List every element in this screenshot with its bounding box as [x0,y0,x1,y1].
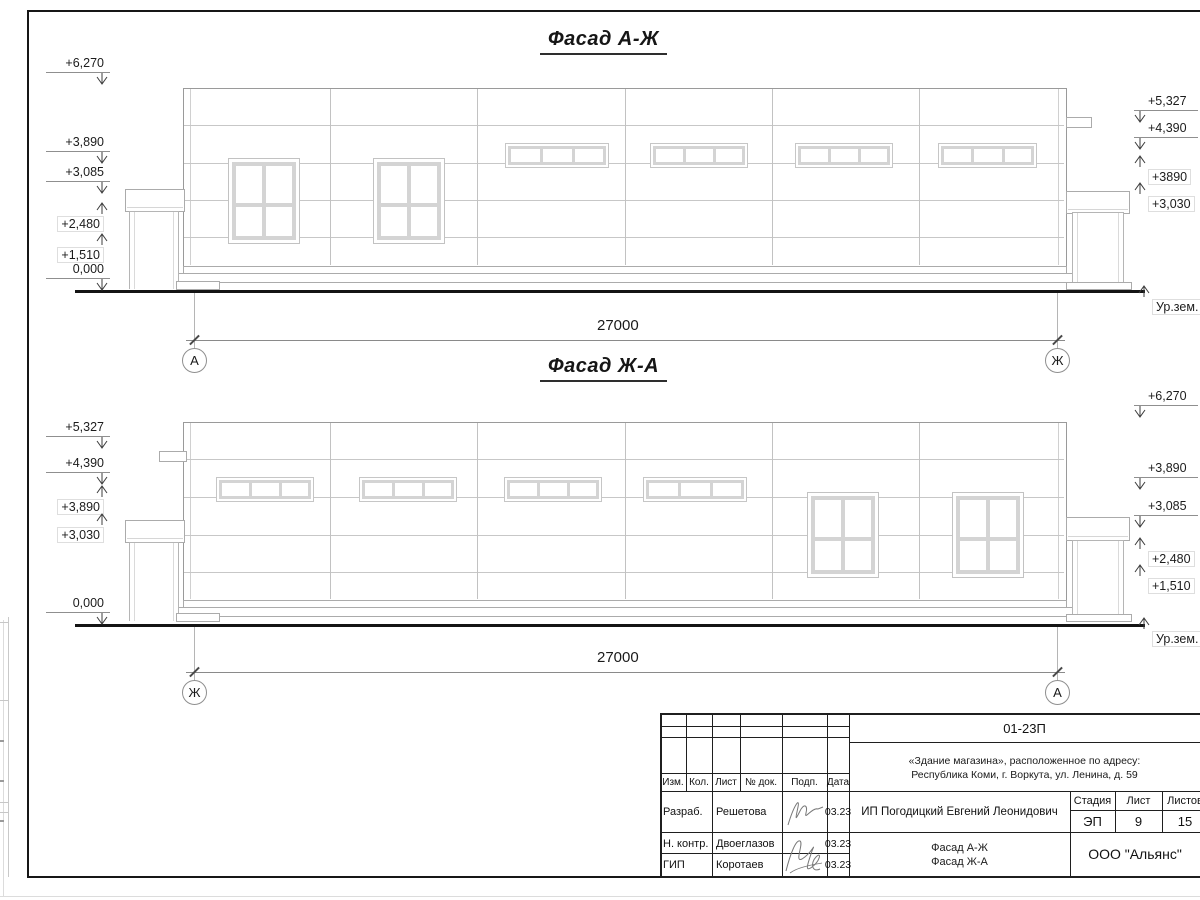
window-frame [941,146,1034,165]
sheet-number: 9 [1115,811,1162,831]
window-divider [537,482,540,497]
ground-line [75,290,1145,293]
elevation-value: +6,270 [65,56,104,70]
signer-role: Н. контр. [663,835,712,853]
window-divider [710,482,713,497]
window-square [373,158,445,244]
sheets-total: 15 [1162,811,1200,831]
signer-role: Разраб. [663,802,712,822]
elevation-arrow-up-icon [1134,181,1146,194]
elevation-mark: +1,510 [42,247,104,262]
elevation-value: +3,890 [65,135,104,149]
window-muntin [236,203,292,207]
porch-edge [134,543,135,621]
sheets-label: Листов [1162,792,1200,810]
paper-edge-left [3,620,4,896]
panel-line [184,535,1064,536]
window-divider [1002,148,1005,163]
panel-line [184,572,1064,573]
panel-joint [477,89,478,265]
porch-edge [1118,541,1119,621]
window-muntin [986,500,990,570]
window-frame [798,146,890,165]
elevation-value: +6,270 [1148,389,1187,403]
window-divider [540,148,543,163]
col-header-podp: Подп. [782,774,827,791]
porch-step [176,281,220,290]
elevation-arrow-up-icon [1138,284,1150,297]
elevation-mark: +2,480 [1148,551,1200,566]
window-divider [422,482,425,497]
elevation-mark: +3,030 [42,527,104,542]
object-description: «Здание магазина», расположенное по адре… [852,746,1197,789]
window-divider [567,482,570,497]
facade-bottom-title: Фасад Ж-А [540,355,667,382]
porch-wall-right [1072,212,1124,289]
col-header-doc: № док. [740,774,782,791]
window-frame [219,480,311,499]
panel-line [184,497,1064,498]
stage-label: Стадия [1070,792,1115,810]
elevation-mark: +3,890 [1148,461,1200,476]
porch-wall-left [129,211,179,289]
elevation-value: +2,480 [57,216,104,232]
stamp-line [660,726,849,727]
signature [784,793,826,831]
porch-step [1066,614,1132,622]
elevation-mark: 0,000 [42,596,104,611]
elevation-value: +5,327 [1148,94,1187,108]
elevation-arrow-down-icon [96,437,108,450]
ground-level-label: Ур.зем. [1152,299,1200,315]
dimension-line [186,340,1065,341]
parapet-ledge [1066,117,1092,128]
col-header-izm: Изм. [660,774,686,791]
window-strip [359,477,457,502]
window-strip [938,143,1037,168]
window-strip [504,477,602,502]
stamp-line [712,713,713,877]
elevation-value: +3,085 [1148,499,1187,513]
signer-name: Коротаев [716,856,780,874]
porch-edge [1077,213,1078,289]
porch-edge [1118,213,1119,289]
window-divider [971,148,974,163]
porch-edge [173,212,174,289]
stamp-drawing-title: Фасад А-Ж Фасад Ж-А [852,833,1067,876]
panel-joint [772,89,773,265]
panel-joint [919,89,920,265]
window-square [807,492,879,578]
window-frame [507,480,599,499]
window-strip [795,143,893,168]
sheet-frame-top [27,10,1200,12]
window-muntin [960,537,1016,541]
elevation-arrow-down-icon [1134,111,1146,124]
canopy-edge [1068,536,1128,537]
canopy-edge [1068,209,1128,210]
elevation-arrow-up-icon [96,232,108,245]
elevation-arrow-up-icon [1134,536,1146,549]
doc-number: 01-23П [849,716,1200,740]
elevation-mark: +3,890 [42,135,104,150]
panel-joint [330,89,331,265]
window-muntin [407,166,411,236]
porch-edge [1077,541,1078,621]
elevation-value: +3,085 [65,165,104,179]
elevation-value: +3,890 [1148,461,1187,475]
window-frame [362,480,454,499]
margin-table-line [0,622,8,623]
elevation-mark: +1,510 [1148,578,1200,593]
col-header-data: Дата [827,774,849,791]
canopy-edge [127,538,183,539]
panel-joint [625,89,626,265]
porch-step [1066,282,1132,290]
sheet-label: Лист [1115,792,1162,810]
porch-edge [134,212,135,289]
window-muntin [815,537,871,541]
object-line2: Республика Коми, г. Воркута, ул. Ленина,… [911,768,1138,782]
stamp-line [660,737,849,738]
dimension-line [186,672,1065,673]
panel-joint [330,423,331,599]
elevation-value: +2,480 [1148,551,1195,567]
elevation-arrow-down-icon [96,613,108,626]
elevation-arrow-up-icon [96,201,108,214]
margin-table-line [8,617,9,877]
elevation-arrow-up-icon [96,484,108,497]
paper-edge-bottom [0,896,1200,897]
elevation-arrow-down-icon [1134,478,1146,491]
window-muntin [841,500,845,570]
elevation-arrow-down-icon [96,73,108,86]
ground-level-mark: Ур.зем. [1152,631,1200,646]
elevation-arrow-down-icon [1134,406,1146,419]
elevation-value: +1,510 [57,247,104,263]
object-line1: «Здание магазина», расположенное по адре… [909,754,1141,768]
elevation-mark: +5,327 [42,420,104,435]
elevation-arrow-up-icon [1134,154,1146,167]
elevation-arrow-up-icon [1134,563,1146,576]
elevation-value: +5,327 [65,420,104,434]
dimension-label: 27000 [597,649,639,666]
porch-wall-left [129,542,179,621]
margin-text-stub [0,780,4,782]
elevation-value: +4,390 [1148,121,1187,135]
stamp-border [660,876,1200,878]
plinth-base [177,273,1073,283]
signer-date: 03.23 [826,856,850,874]
facade-top-title: Фасад А-Ж [540,28,667,55]
elevation-mark: +5,327 [1148,94,1200,109]
window-muntin [262,166,266,236]
dimension-label: 27000 [597,317,639,334]
porch-canopy-left [125,189,185,212]
elevation-value: 0,000 [73,596,104,610]
window-divider [678,482,681,497]
elevation-arrow-up-icon [1138,616,1150,629]
window-frame [653,146,745,165]
signer-date: 03.23 [826,802,850,822]
stamp-drawing-title-line2: Фасад Ж-А [931,855,988,869]
window-strip [650,143,748,168]
plinth-base [177,607,1073,617]
wall-edge-line [1058,89,1059,265]
axis-bubble-left: А [182,348,207,373]
elevation-mark: +3,085 [42,165,104,180]
panel-joint [625,423,626,599]
margin-text-stub [0,740,4,742]
window-divider [279,482,282,497]
window-divider [249,482,252,497]
elevation-arrow-down-icon [96,182,108,195]
sheet-frame-left [27,10,29,878]
panel-line [184,125,1064,126]
client-name: ИП Погодицкий Евгений Леонидович [852,793,1067,831]
elevation-mark: +6,270 [1148,389,1200,404]
signer-name: Решетова [716,802,780,822]
elevation-arrow-down-icon [96,152,108,165]
margin-text-stub [0,820,4,822]
panel-joint [919,423,920,599]
window-strip [505,143,609,168]
axis-bubble-left: Ж [182,680,207,705]
drawing-sheet: Фасад А-Ж +6,270 +3,890 +3,085 +2,480 [0,0,1200,900]
window-divider [683,148,686,163]
window-strip [216,477,314,502]
porch-canopy-right [1066,517,1130,541]
stamp-line [849,742,1200,743]
window-divider [392,482,395,497]
elevation-arrow-down-icon [1134,138,1146,151]
stamp-border [660,713,1200,715]
panel-line [184,200,1064,201]
window-frame [508,146,606,165]
panel-line [184,163,1064,164]
elevation-arrow-up-icon [96,512,108,525]
parapet-ledge [159,451,187,462]
elevation-value: +3890 [1148,169,1191,185]
elevation-value: +3,030 [1148,196,1195,212]
porch-canopy-left [125,520,185,543]
elevation-value: +3,030 [57,527,104,543]
window-divider [713,148,716,163]
signer-role: ГИП [663,856,712,874]
porch-edge [173,543,174,621]
window-frame [646,480,744,499]
elevation-mark: 0,000 [42,262,104,277]
window-divider [572,148,575,163]
margin-table-line [0,802,8,803]
elevation-value: 0,000 [73,262,104,276]
margin-table-line [0,812,8,813]
elevation-mark: +4,390 [1148,121,1200,136]
window-square [228,158,300,244]
col-header-kol: Кол. [686,774,712,791]
elevation-mark: +3,890 [42,499,104,514]
ground-level-label: Ур.зем. [1152,631,1200,647]
elevation-value: +4,390 [65,456,104,470]
ground-level-mark: Ур.зем. [1152,299,1200,314]
elevation-arrow-down-icon [96,279,108,292]
elevation-mark: +6,270 [42,56,104,71]
stage-value: ЭП [1070,811,1115,831]
porch-canopy-right [1066,191,1130,214]
signer-date: 03.23 [826,835,850,853]
margin-table-line [0,700,8,701]
porch-step [176,613,220,622]
elevation-value: +1,510 [1148,578,1195,594]
window-strip [643,477,747,502]
signer-name: Двоеглазов [716,835,780,853]
col-header-list: Лист [712,774,740,791]
elevation-arrow-down-icon [1134,516,1146,529]
elevation-mark: +4,390 [42,456,104,471]
signature [782,833,828,877]
canopy-edge [127,207,183,208]
panel-joint [772,423,773,599]
stamp-drawing-title-line1: Фасад А-Ж [931,841,988,855]
ground-line [75,624,1145,627]
window-muntin [381,203,437,207]
wall-edge-line [190,89,191,265]
panel-line [184,459,1064,460]
company-name: ООО "Альянс" [1070,833,1200,876]
panel-joint [477,423,478,599]
porch-wall-right [1072,540,1124,621]
elevation-mark: +3,030 [1148,196,1200,211]
window-divider [858,148,861,163]
title-block: Изм. Кол. Лист № док. Подп. Дата Разраб.… [660,713,1200,877]
axis-bubble-right: Ж [1045,348,1070,373]
elevation-mark: +2,480 [42,216,104,231]
elevation-mark: +3890 [1148,169,1200,184]
window-square [952,492,1024,578]
window-divider [828,148,831,163]
panel-line [184,237,1064,238]
axis-bubble-right: А [1045,680,1070,705]
elevation-mark: +3,085 [1148,499,1200,514]
